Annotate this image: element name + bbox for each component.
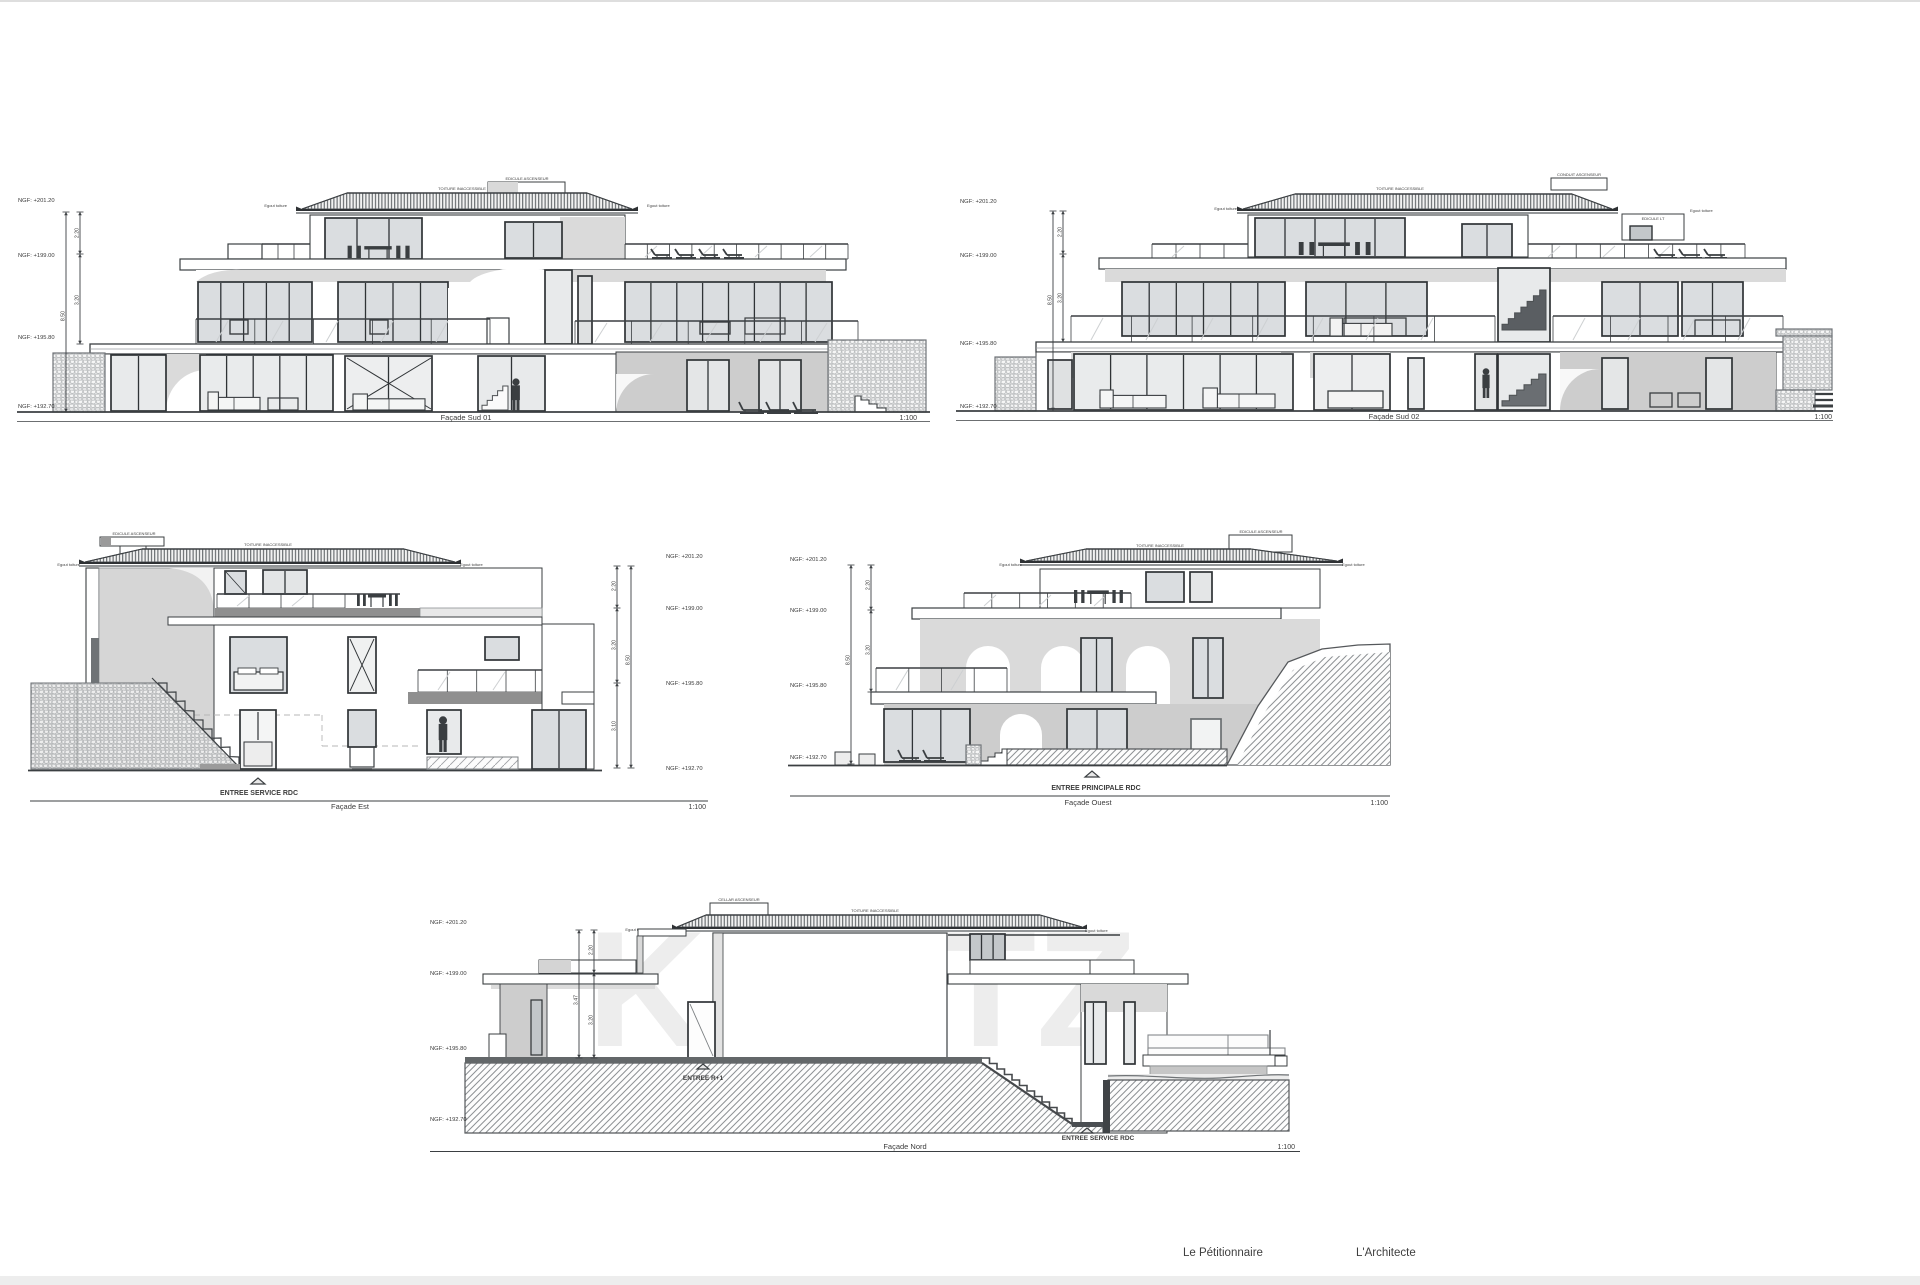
- svg-text:3.20: 3.20: [612, 640, 618, 650]
- svg-text:Egout toiture: Egout toiture: [1342, 562, 1365, 567]
- svg-text:Egout toiture: Egout toiture: [999, 562, 1022, 567]
- svg-text:2.20: 2.20: [1058, 227, 1064, 237]
- svg-text:3.20: 3.20: [589, 1015, 595, 1025]
- svg-text:Le Pétitionnaire: Le Pétitionnaire: [1183, 1247, 1263, 1259]
- svg-text:2.20: 2.20: [612, 581, 618, 591]
- svg-text:NGF: +195.80: NGF: +195.80: [960, 341, 997, 347]
- svg-text:1:100: 1:100: [1277, 1144, 1295, 1151]
- svg-text:1:100: 1:100: [688, 804, 706, 811]
- svg-text:CELLAR ASCENSEUR: CELLAR ASCENSEUR: [718, 897, 759, 902]
- svg-text:2.20: 2.20: [866, 580, 872, 590]
- svg-text:8.50: 8.50: [1048, 295, 1054, 305]
- svg-text:L'Architecte: L'Architecte: [1356, 1247, 1416, 1259]
- svg-text:NGF: +199.00: NGF: +199.00: [960, 253, 997, 259]
- svg-text:NGF: +195.80: NGF: +195.80: [18, 335, 55, 341]
- svg-text:NGF: +201.20: NGF: +201.20: [960, 199, 997, 205]
- svg-text:NGF: +192.70: NGF: +192.70: [960, 404, 997, 410]
- svg-text:CONDUIT ASCENSEUR: CONDUIT ASCENSEUR: [1557, 172, 1601, 177]
- svg-text:1:100: 1:100: [1814, 414, 1832, 421]
- svg-text:TOITURE INACCESSIBLE: TOITURE INACCESSIBLE: [244, 542, 292, 547]
- svg-text:NGF: +201.20: NGF: +201.20: [18, 198, 55, 204]
- svg-text:Façade Ouest: Façade Ouest: [1064, 798, 1112, 807]
- svg-text:TOITURE INACCESSIBLE: TOITURE INACCESSIBLE: [438, 186, 486, 191]
- svg-text:NGF: +195.80: NGF: +195.80: [430, 1046, 467, 1052]
- svg-text:3.47: 3.47: [574, 995, 580, 1005]
- svg-text:NGF: +201.20: NGF: +201.20: [790, 557, 827, 563]
- svg-text:NGF: +199.00: NGF: +199.00: [430, 971, 467, 977]
- svg-text:NGF: +195.80: NGF: +195.80: [790, 683, 827, 689]
- svg-text:ENTREE R+1: ENTREE R+1: [683, 1075, 724, 1082]
- svg-text:1:100: 1:100: [899, 415, 917, 422]
- svg-text:3.20: 3.20: [75, 295, 81, 305]
- svg-text:Façade Nord: Façade Nord: [883, 1142, 926, 1151]
- svg-text:NGF: +192.70: NGF: +192.70: [666, 766, 703, 772]
- svg-text:Egout toiture: Egout toiture: [647, 203, 670, 208]
- svg-text:8.50: 8.50: [626, 655, 632, 665]
- svg-text:NGF: +201.20: NGF: +201.20: [430, 920, 467, 926]
- svg-text:EDICULE LT: EDICULE LT: [1642, 216, 1665, 221]
- svg-text:TOITURE INACCESSIBLE: TOITURE INACCESSIBLE: [851, 908, 899, 913]
- svg-text:NGF: +199.00: NGF: +199.00: [666, 606, 703, 612]
- svg-text:8.50: 8.50: [61, 311, 67, 321]
- svg-text:Egout toiture: Egout toiture: [264, 203, 287, 208]
- svg-text:NGF: +192.70: NGF: +192.70: [790, 755, 827, 761]
- svg-text:Façade Est: Façade Est: [331, 802, 370, 811]
- svg-text:EDICULE ASCENSEUR: EDICULE ASCENSEUR: [1239, 529, 1282, 534]
- svg-text:8.50: 8.50: [846, 655, 852, 665]
- svg-text:EDICULE ASCENSEUR: EDICULE ASCENSEUR: [112, 531, 155, 536]
- svg-text:Façade Sud 01: Façade Sud 01: [441, 413, 492, 422]
- svg-text:Egout toiture: Egout toiture: [1690, 208, 1713, 213]
- svg-text:NGF: +199.00: NGF: +199.00: [18, 253, 55, 259]
- svg-text:Façade Sud 02: Façade Sud 02: [1369, 412, 1420, 421]
- svg-text:2.20: 2.20: [589, 945, 595, 955]
- svg-text:Egout toiture: Egout toiture: [57, 562, 80, 567]
- svg-text:Egout toiture: Egout toiture: [1085, 928, 1108, 933]
- svg-text:2.20: 2.20: [75, 228, 81, 238]
- svg-text:TOITURE INACCESSIBLE: TOITURE INACCESSIBLE: [1136, 543, 1184, 548]
- svg-text:NGF: +201.20: NGF: +201.20: [666, 554, 703, 560]
- svg-text:TOITURE INACCESSIBLE: TOITURE INACCESSIBLE: [1376, 186, 1424, 191]
- svg-text:NGF: +192.70: NGF: +192.70: [430, 1117, 467, 1123]
- svg-text:3.20: 3.20: [866, 645, 872, 655]
- svg-text:1:100: 1:100: [1370, 800, 1388, 807]
- svg-text:EDICULE ASCENSEUR: EDICULE ASCENSEUR: [505, 176, 548, 181]
- svg-text:ENTREE SERVICE RDC: ENTREE SERVICE RDC: [1062, 1135, 1135, 1142]
- svg-text:NGF: +199.00: NGF: +199.00: [790, 608, 827, 614]
- svg-text:3.20: 3.20: [1058, 293, 1064, 303]
- svg-text:3.10: 3.10: [612, 721, 618, 731]
- svg-text:ENTREE SERVICE RDC: ENTREE SERVICE RDC: [220, 790, 298, 797]
- svg-text:ENTREE PRINCIPALE RDC: ENTREE PRINCIPALE RDC: [1051, 785, 1140, 792]
- svg-text:NGF: +195.80: NGF: +195.80: [666, 681, 703, 687]
- svg-text:Egout toiture: Egout toiture: [460, 562, 483, 567]
- svg-text:Egout toiture: Egout toiture: [1214, 206, 1237, 211]
- svg-text:NGF: +192.70: NGF: +192.70: [18, 404, 55, 410]
